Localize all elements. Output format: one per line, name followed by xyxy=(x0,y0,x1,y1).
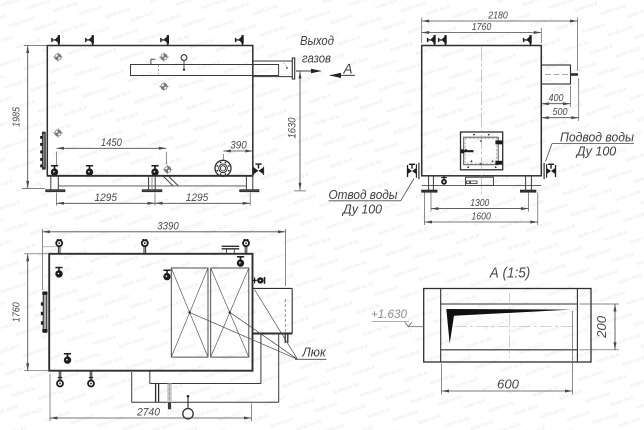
svg-text:1450: 1450 xyxy=(101,137,123,149)
svg-text:Ду 100: Ду 100 xyxy=(575,144,617,159)
svg-text:Отвод воды: Отвод воды xyxy=(329,187,398,202)
svg-text:1760: 1760 xyxy=(472,22,492,33)
svg-text:2180: 2180 xyxy=(487,11,508,22)
svg-text:газов: газов xyxy=(302,51,331,66)
svg-text:Выход: Выход xyxy=(300,33,334,48)
svg-text:+1.630: +1.630 xyxy=(371,307,407,321)
svg-text:2740: 2740 xyxy=(136,407,161,419)
svg-text:3390: 3390 xyxy=(157,220,179,232)
svg-text:500: 500 xyxy=(553,107,568,118)
svg-text:1985: 1985 xyxy=(12,106,23,127)
svg-text:1600: 1600 xyxy=(471,212,491,223)
svg-text:А (1:5): А (1:5) xyxy=(489,265,530,282)
svg-text:1630: 1630 xyxy=(287,117,299,139)
svg-text:1760: 1760 xyxy=(12,302,23,323)
svg-text:1300: 1300 xyxy=(470,198,489,209)
svg-text:400: 400 xyxy=(549,93,564,104)
svg-text:1295: 1295 xyxy=(186,192,209,204)
svg-text:А: А xyxy=(342,62,352,77)
svg-text:Ду 100: Ду 100 xyxy=(341,201,383,216)
svg-text:1295: 1295 xyxy=(95,192,118,204)
svg-text:600: 600 xyxy=(497,377,520,392)
svg-text:200: 200 xyxy=(594,315,609,339)
svg-text:390: 390 xyxy=(230,140,247,152)
svg-text:Подвод воды: Подвод воды xyxy=(560,130,634,145)
svg-text:Люк: Люк xyxy=(301,345,326,360)
